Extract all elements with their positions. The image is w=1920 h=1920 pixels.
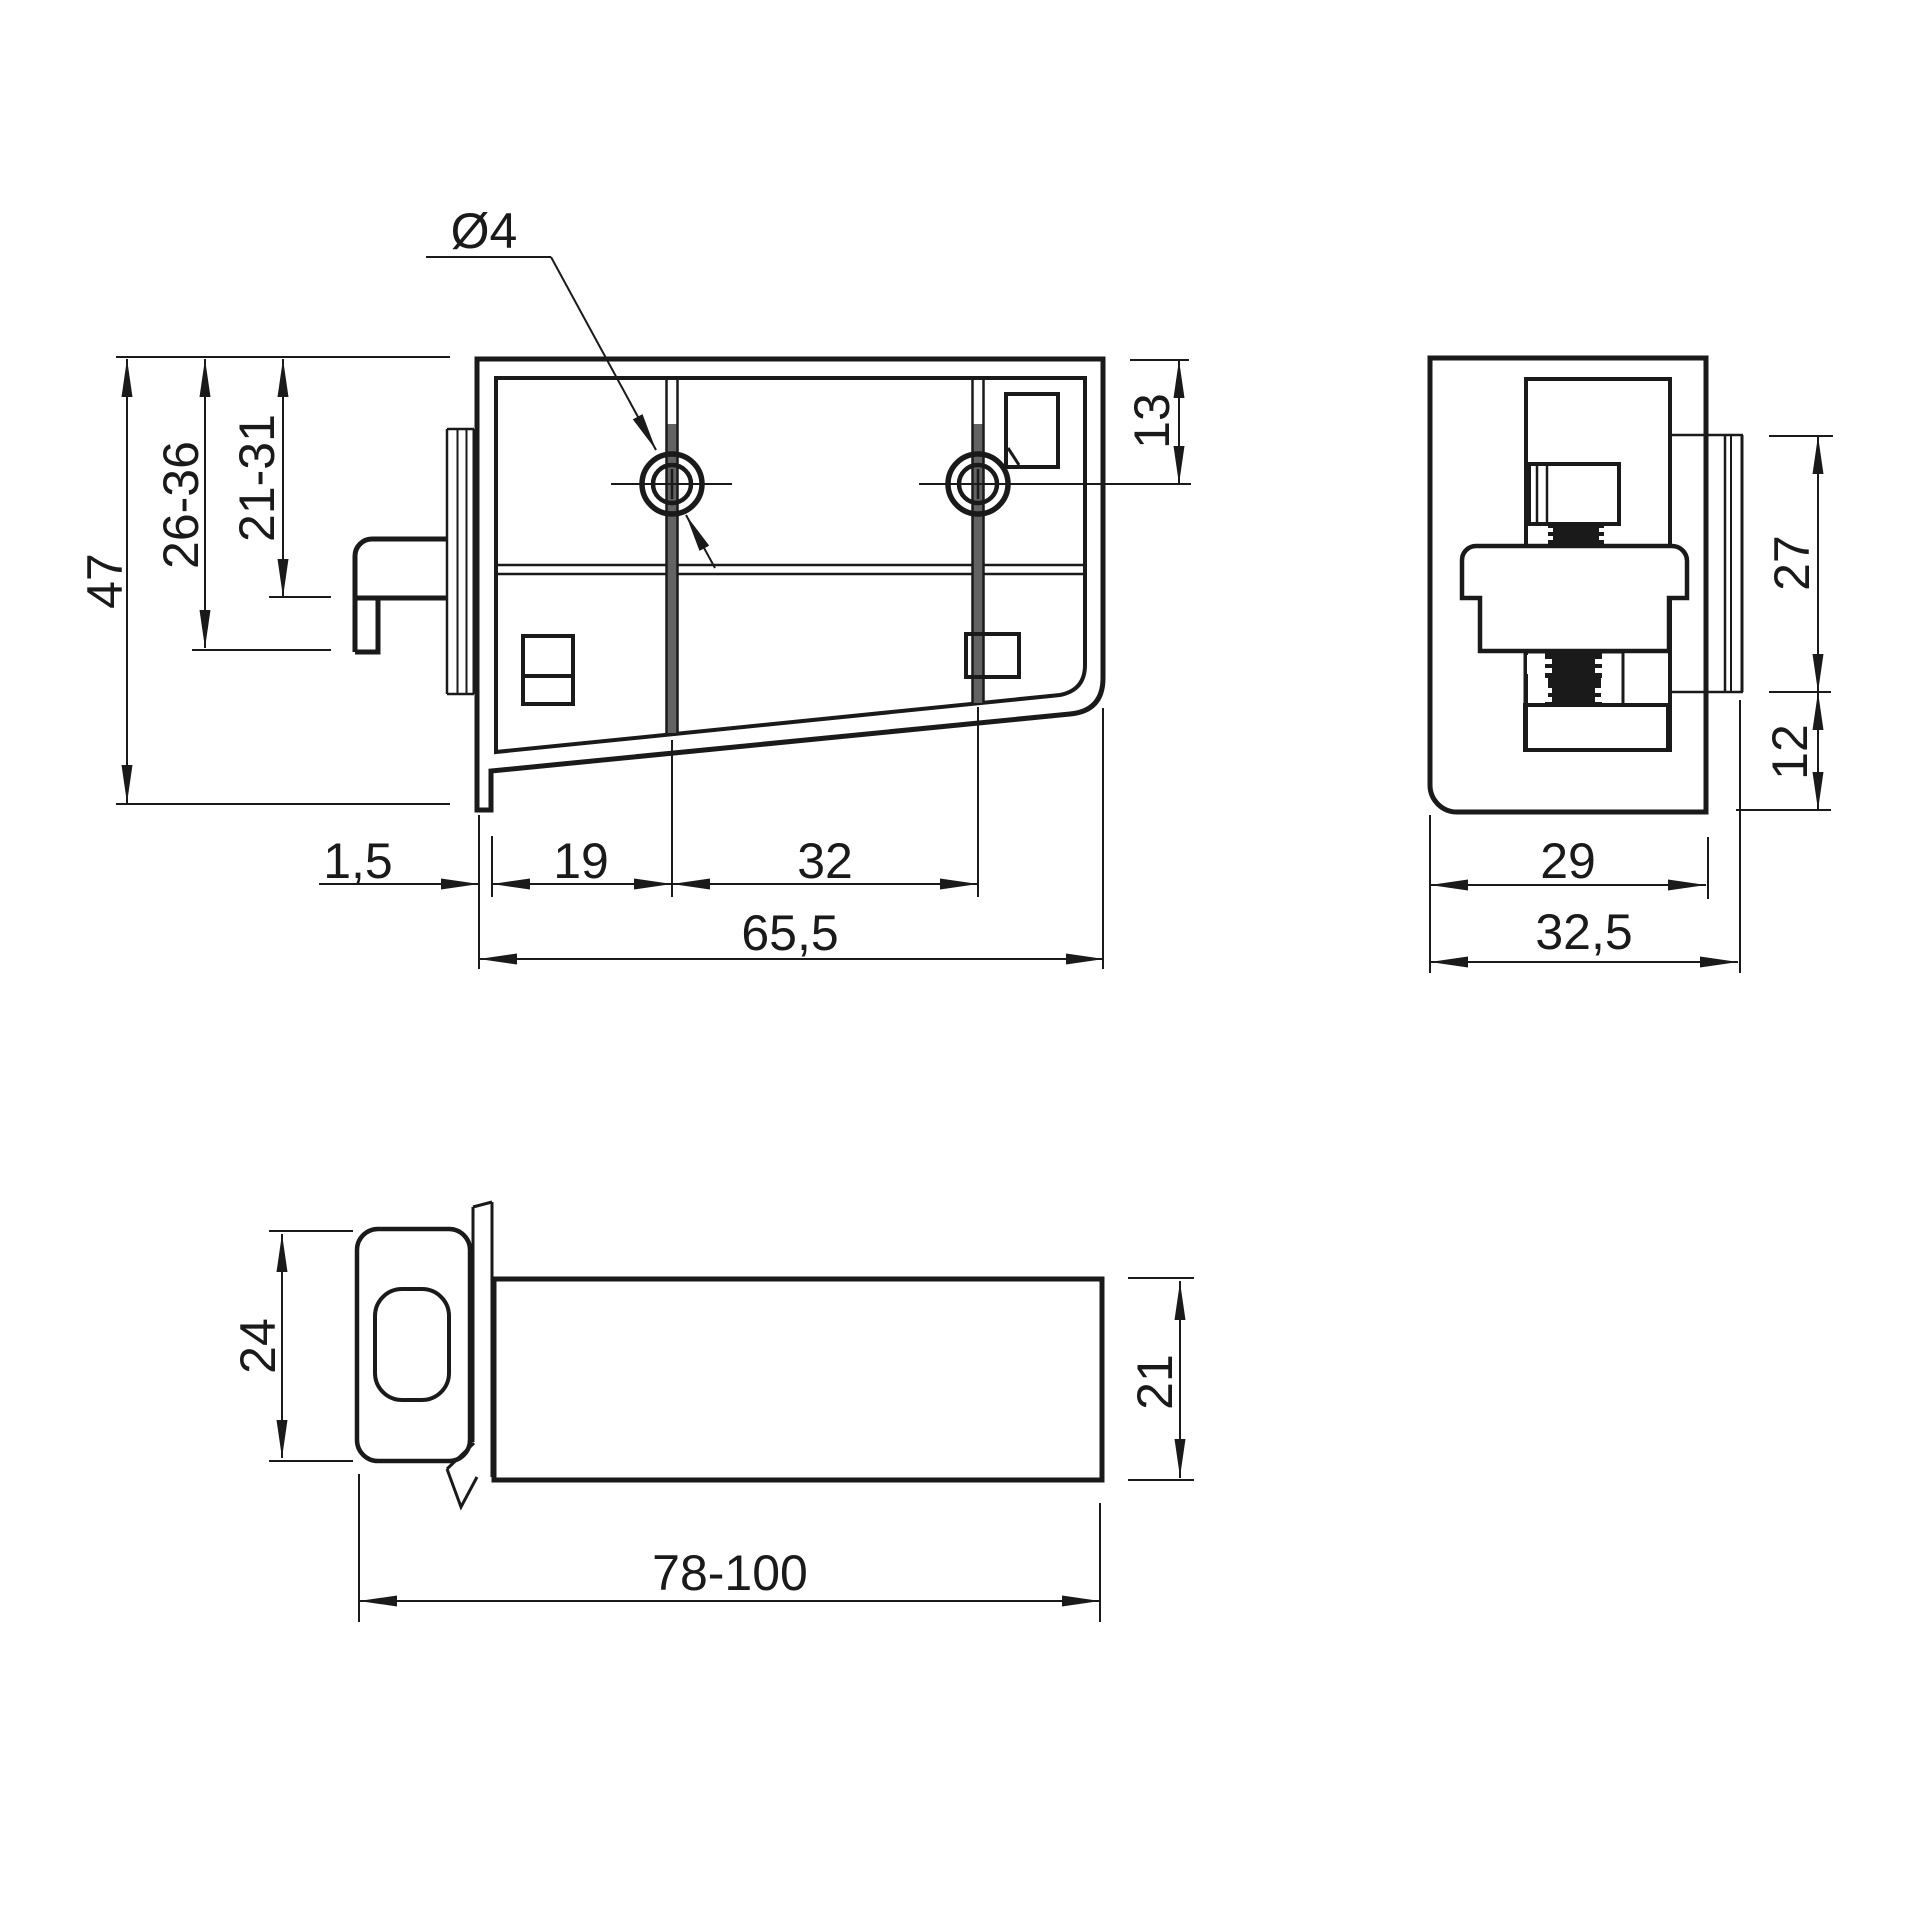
svg-text:21-31: 21-31	[229, 414, 285, 542]
svg-text:Ø4: Ø4	[451, 203, 518, 259]
svg-text:26-36: 26-36	[153, 441, 209, 569]
svg-text:32,5: 32,5	[1535, 904, 1632, 960]
svg-text:21: 21	[1127, 1354, 1183, 1410]
svg-text:65,5: 65,5	[741, 905, 838, 961]
svg-text:32: 32	[797, 833, 853, 889]
svg-text:78-100: 78-100	[652, 1545, 808, 1601]
svg-text:19: 19	[553, 833, 609, 889]
svg-text:1,5: 1,5	[323, 833, 393, 889]
svg-text:29: 29	[1540, 833, 1596, 889]
svg-text:27: 27	[1764, 535, 1820, 591]
svg-text:13: 13	[1124, 393, 1180, 449]
svg-text:12: 12	[1762, 724, 1818, 780]
svg-text:47: 47	[77, 553, 133, 609]
svg-text:24: 24	[230, 1318, 286, 1374]
